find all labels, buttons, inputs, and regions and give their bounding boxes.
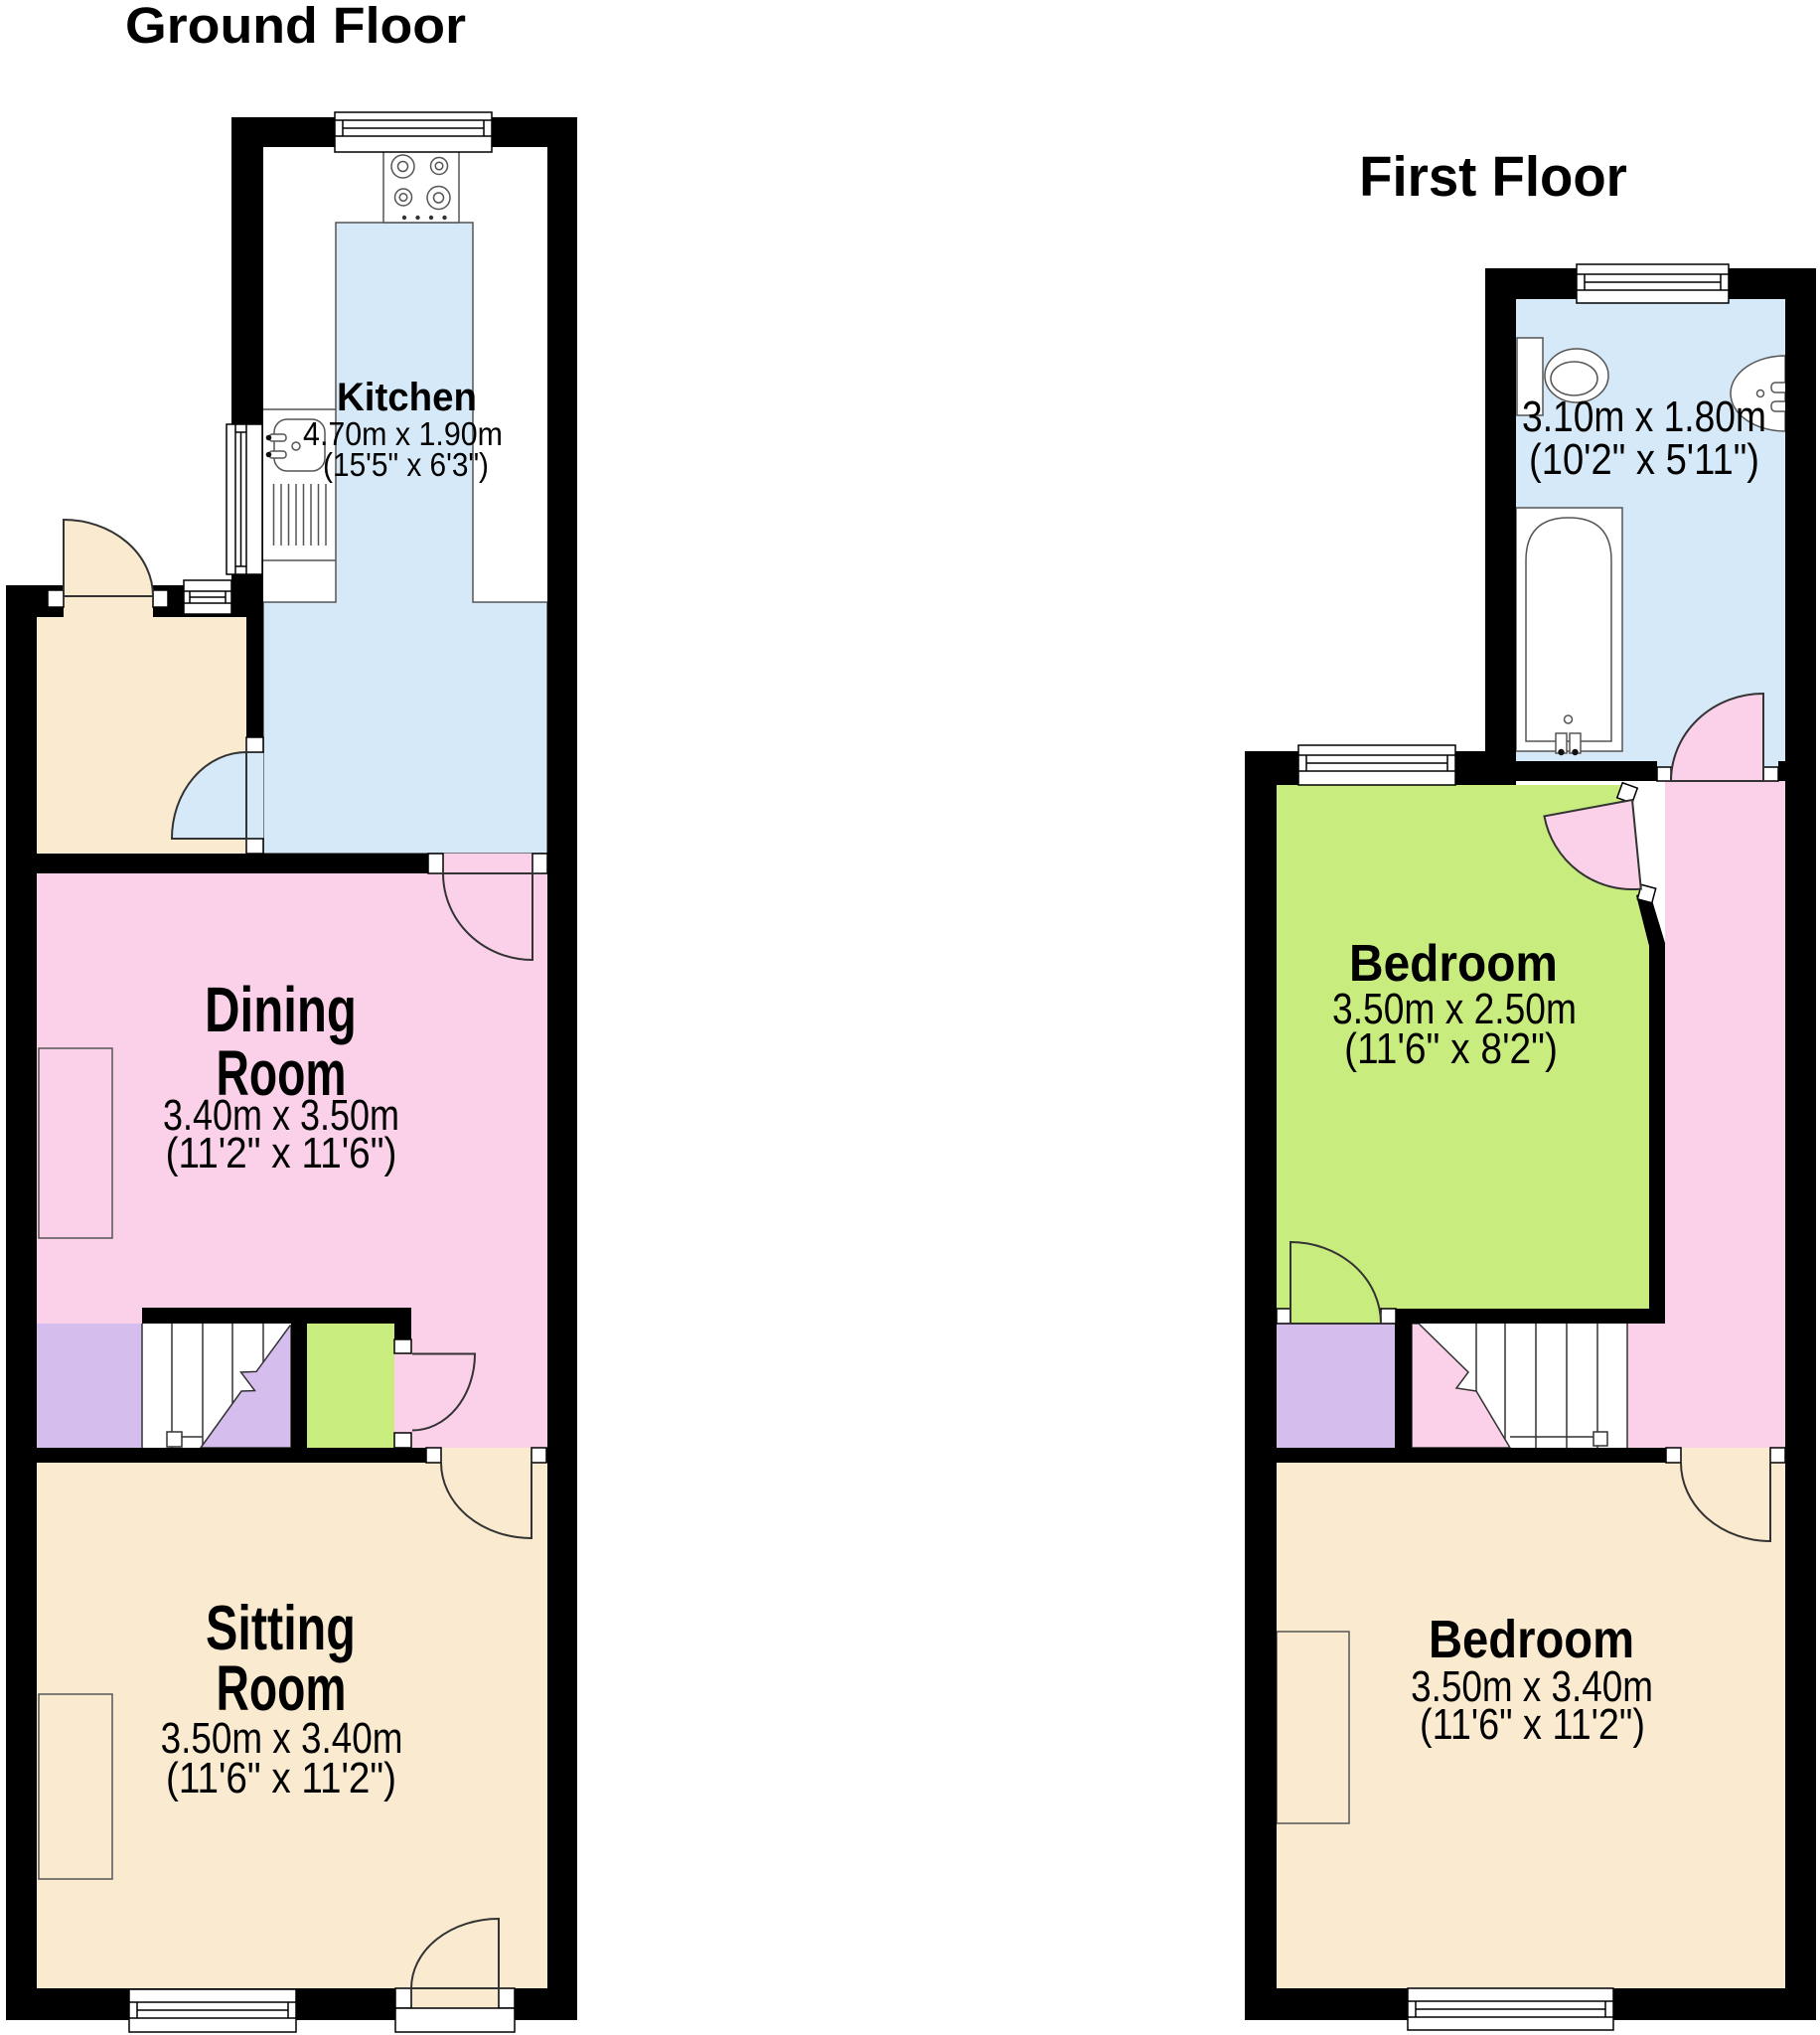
svg-text:(10'2" x 5'11"): (10'2" x 5'11"): [1529, 435, 1759, 484]
svg-text:(11'6" x 11'2"): (11'6" x 11'2"): [166, 1754, 396, 1802]
svg-text:First Floor: First Floor: [1359, 145, 1627, 208]
svg-text:Bedroom: Bedroom: [1429, 1609, 1634, 1669]
svg-text:(11'6" x 11'2"): (11'6" x 11'2"): [1420, 1700, 1645, 1749]
svg-text:Ground Floor: Ground Floor: [125, 0, 466, 55]
svg-text:(11'2" x 11'6"): (11'2" x 11'6"): [166, 1129, 397, 1177]
svg-text:Kitchen: Kitchen: [337, 375, 477, 419]
svg-text:Dining: Dining: [205, 975, 357, 1046]
svg-text:3.10m x 1.80m: 3.10m x 1.80m: [1522, 391, 1766, 440]
svg-text:(15'5" x 6'3"): (15'5" x 6'3"): [323, 445, 489, 483]
svg-text:(11'6" x 8'2"): (11'6" x 8'2"): [1344, 1024, 1558, 1072]
